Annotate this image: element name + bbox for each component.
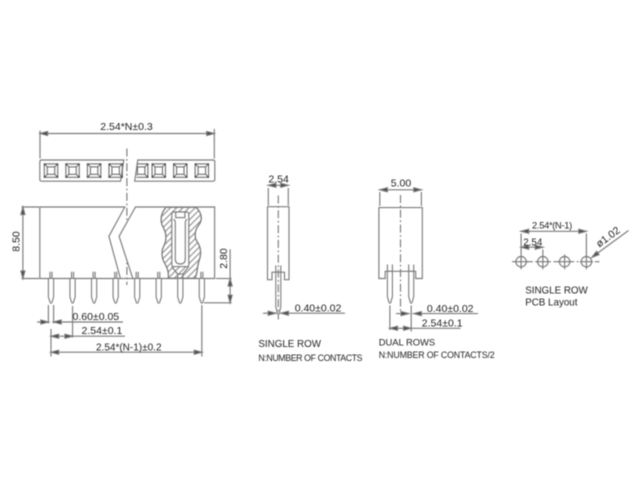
svg-text:0.40±0.02: 0.40±0.02 <box>295 302 342 314</box>
svg-text:N:NUMBER OF CONTACTS: N:NUMBER OF CONTACTS <box>258 353 362 363</box>
svg-text:PCB Layout: PCB Layout <box>525 298 578 309</box>
svg-text:2.54: 2.54 <box>268 174 289 186</box>
svg-text:DUAL ROWS: DUAL ROWS <box>379 337 435 348</box>
svg-text:N:NUMBER OF CONTACTS/2: N:NUMBER OF CONTACTS/2 <box>379 350 495 360</box>
svg-text:2.54*N±0.3: 2.54*N±0.3 <box>100 121 153 133</box>
svg-text:2.54*(N-1)±0.2: 2.54*(N-1)±0.2 <box>96 342 162 353</box>
svg-text:SINGLE ROW: SINGLE ROW <box>525 286 588 297</box>
svg-text:2.54±0.1: 2.54±0.1 <box>82 325 123 337</box>
svg-text:2.80: 2.80 <box>218 248 230 269</box>
svg-text:2.54*(N-1): 2.54*(N-1) <box>532 220 572 230</box>
svg-text:0.40±0.02: 0.40±0.02 <box>427 303 474 315</box>
svg-text:8.50: 8.50 <box>11 231 23 252</box>
svg-text:5.00: 5.00 <box>391 178 412 190</box>
svg-text:2.54±0.1: 2.54±0.1 <box>422 318 463 330</box>
svg-text:0.60±0.05: 0.60±0.05 <box>73 311 120 323</box>
svg-text:SINGLE ROW: SINGLE ROW <box>258 339 321 350</box>
svg-text:2.54: 2.54 <box>523 237 543 248</box>
